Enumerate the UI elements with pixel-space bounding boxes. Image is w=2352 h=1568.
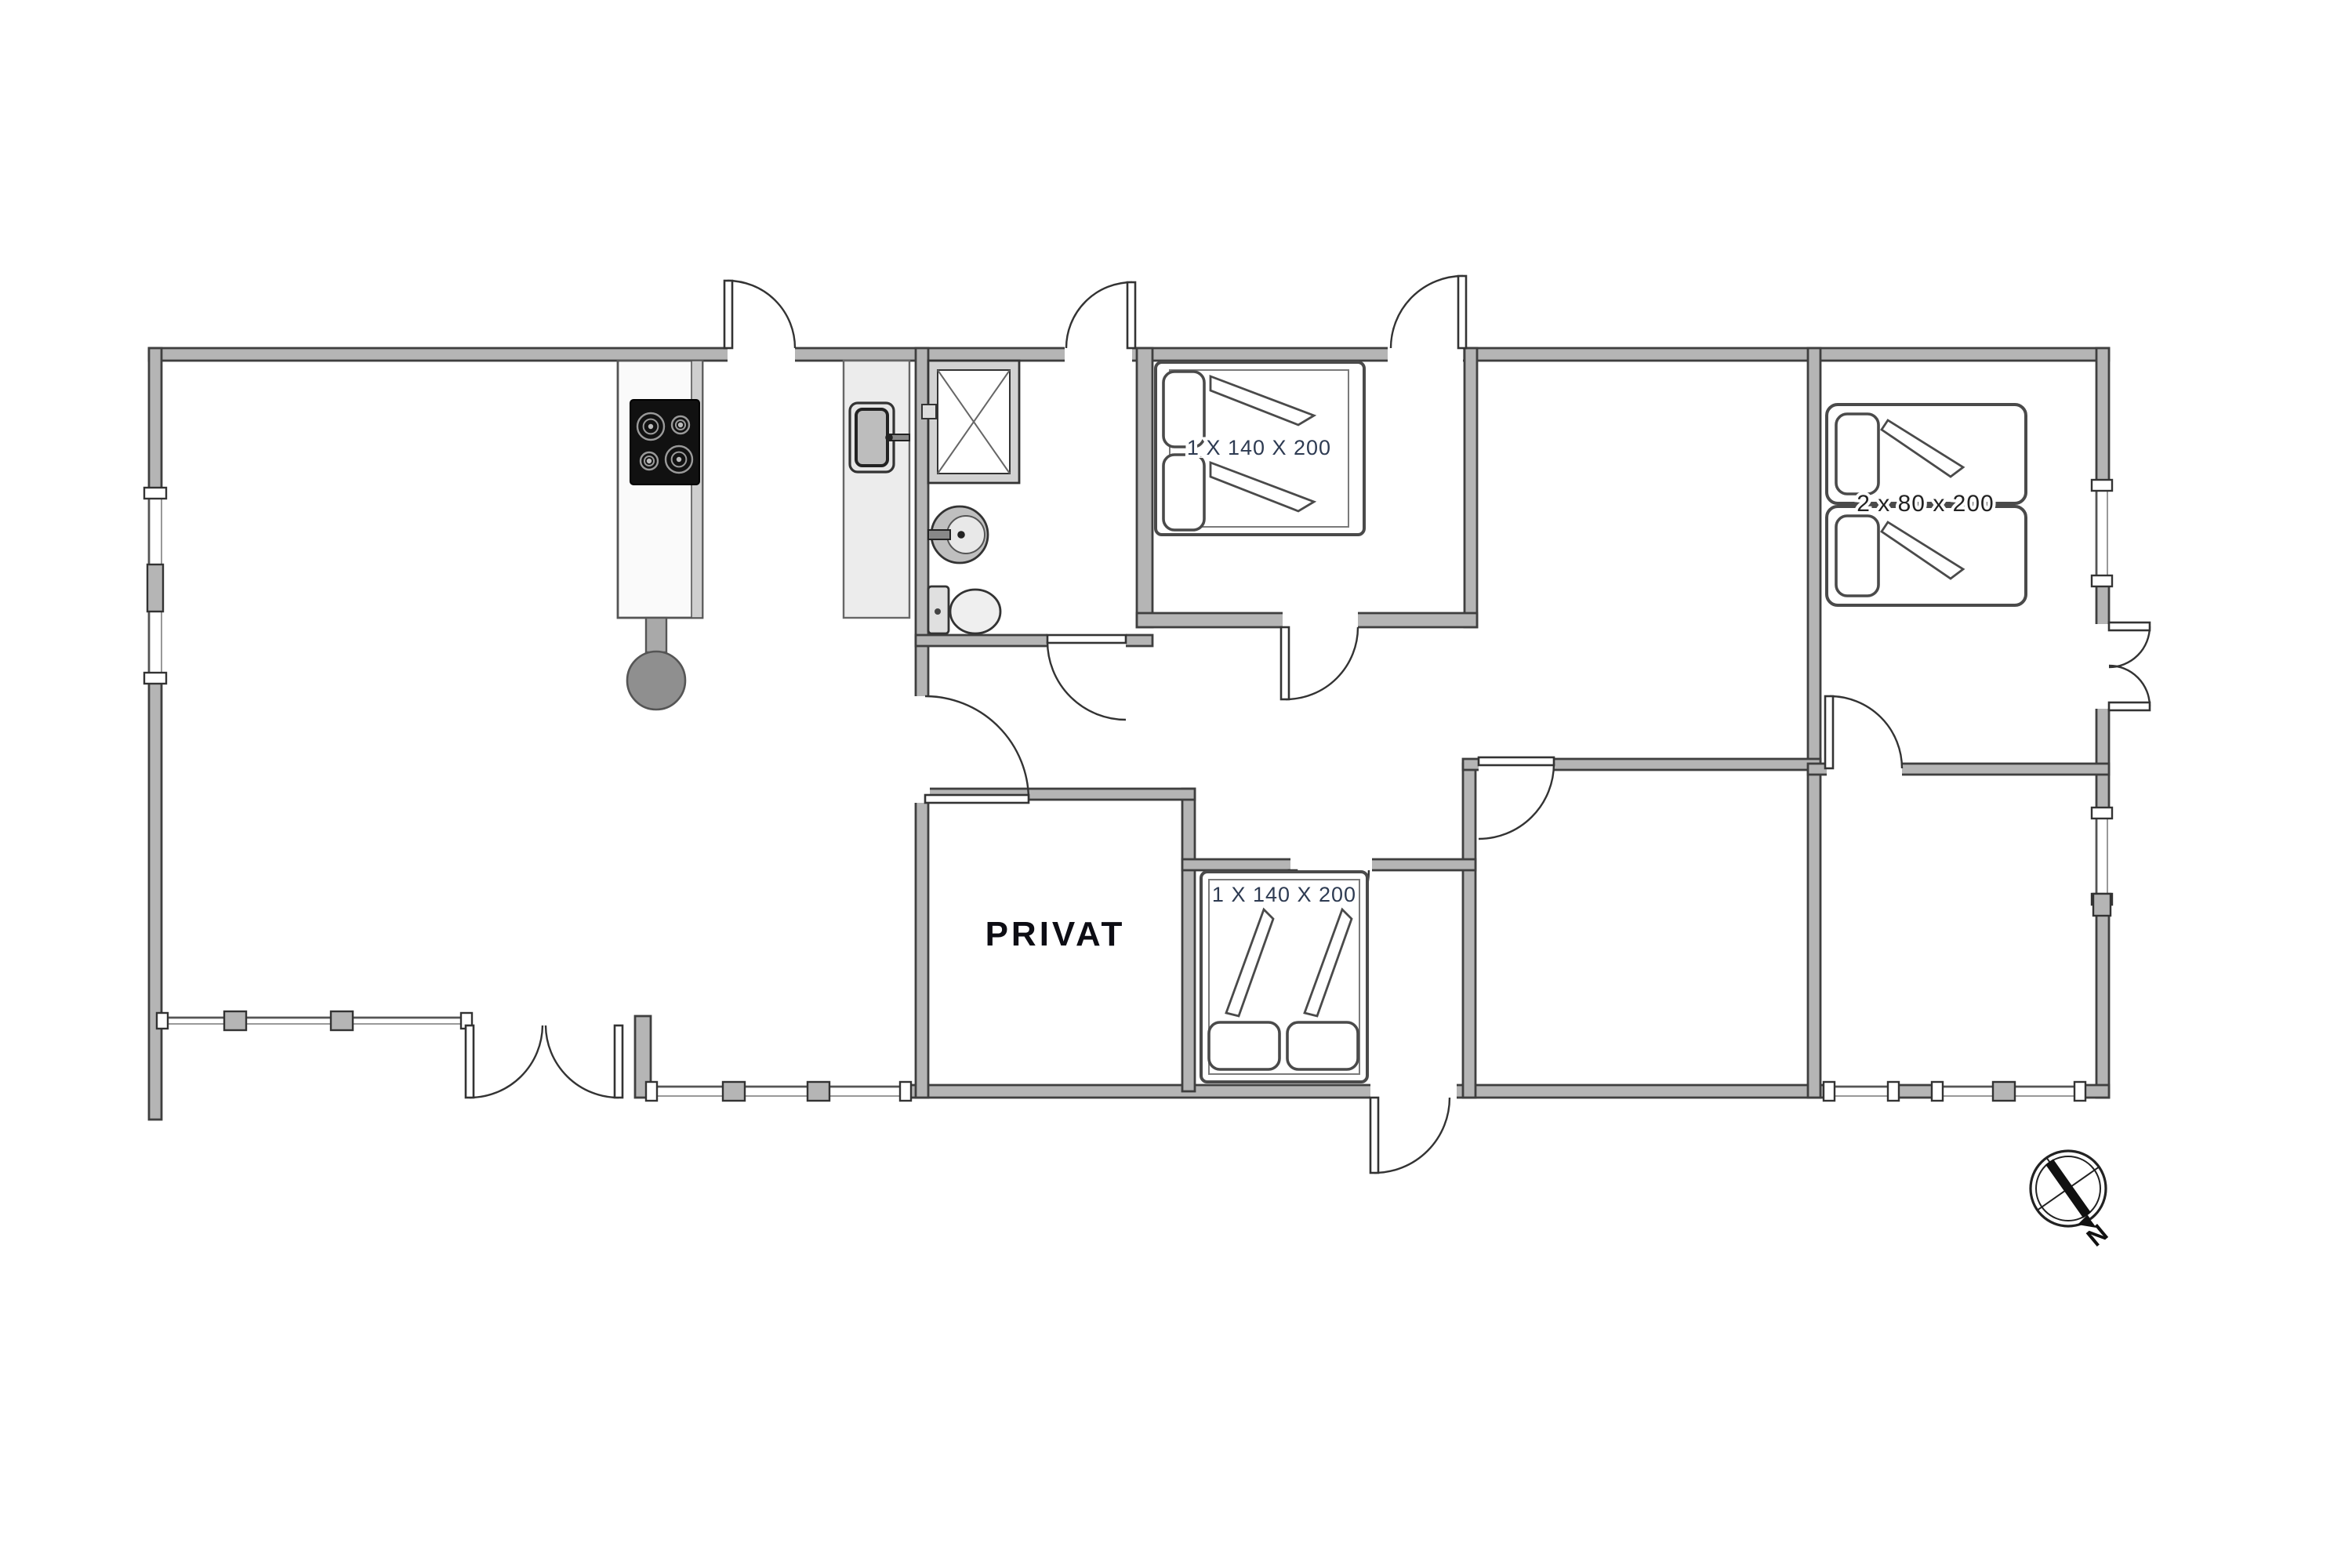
door-swing-arc <box>470 1025 543 1098</box>
window-end-cap <box>1888 1082 1899 1101</box>
bathroom-fixtures <box>922 361 1019 633</box>
door-leaf <box>1479 757 1554 765</box>
door-leaf <box>1458 276 1466 348</box>
window-mullion <box>331 1011 353 1030</box>
door-swing-arc <box>925 696 1029 800</box>
door-porch-french-right <box>546 1025 622 1098</box>
door-bath-exterior <box>1066 282 1135 348</box>
door-entrance-nw <box>724 281 795 348</box>
window-end-cap <box>144 673 166 684</box>
pillow <box>1836 414 1878 494</box>
wood-stove <box>627 652 685 710</box>
door-leaf <box>724 281 732 348</box>
door-south-exterior <box>1370 1098 1450 1173</box>
door-porch-french-left <box>466 1025 543 1098</box>
wall-opening <box>728 347 795 362</box>
door-hall-west <box>925 696 1029 803</box>
door-leaf <box>1047 635 1126 643</box>
door-leaf <box>466 1025 474 1098</box>
door-swing-arc <box>1830 696 1902 768</box>
door-swing-arc <box>1066 282 1132 348</box>
window-end-cap <box>2092 480 2112 491</box>
door-leaf <box>925 795 1029 803</box>
window-end-cap <box>1932 1082 1943 1101</box>
shower-head-icon <box>922 405 936 419</box>
door-swing-arc <box>546 1025 619 1098</box>
sink-basin <box>856 409 887 466</box>
north-needle <box>2049 1162 2087 1215</box>
door-leaf <box>1370 1098 1378 1173</box>
window-porch-band <box>157 1011 472 1030</box>
wall-bottommid-west <box>1463 764 1475 1098</box>
pillow <box>1209 1022 1279 1069</box>
door-leaf <box>615 1025 622 1098</box>
door-leaf <box>1127 282 1135 348</box>
washbasin-bowl <box>947 516 985 554</box>
door-bedroom1 <box>1281 627 1358 699</box>
door-east-french-top <box>2109 622 2150 667</box>
window-mullion <box>723 1082 745 1101</box>
bed-size-label: 1 X 140 X 200 <box>1212 883 1356 906</box>
door-bedroom1-exterior <box>1391 276 1466 348</box>
door-swing-arc <box>1391 276 1463 348</box>
wall-opening <box>914 696 930 803</box>
window-end-cap <box>157 1013 168 1029</box>
wall-exterior-east <box>2096 348 2109 1098</box>
door-swing-arc <box>1479 764 1554 839</box>
bed-size-label: 2 x 80 x 200 <box>1857 491 1994 517</box>
window-mullion <box>1993 1082 2015 1101</box>
wall-opening <box>1388 347 1463 362</box>
cooktop-burner-icon <box>647 459 652 463</box>
cooktop-burner-icon <box>648 424 653 429</box>
door-bedroom2 <box>1825 696 1902 768</box>
window-end-cap <box>2092 808 2112 818</box>
door-leaf <box>2109 702 2150 710</box>
door-leaf <box>1825 696 1833 768</box>
door-leaf <box>1281 627 1289 699</box>
pillow <box>1836 516 1878 596</box>
floor-plan-canvas: 1 X 140 X 2001 X 140 X 2002 x 80 x 200PR… <box>0 0 2352 1568</box>
wall-mid-east <box>1808 348 1820 1098</box>
toilet-bowl <box>950 590 1000 633</box>
window-south-living <box>646 1082 911 1101</box>
window-west-wall <box>144 488 166 684</box>
kitchen-counter <box>618 361 702 710</box>
door-swing-arc <box>1047 641 1126 720</box>
wall-bath-east <box>1137 348 1152 627</box>
wall-privat-east <box>1182 789 1195 1091</box>
window-mullion <box>147 564 163 612</box>
bed-size-label: 1 X 140 X 200 <box>1187 436 1331 459</box>
pillow <box>1163 455 1204 530</box>
wall-opening <box>1370 1083 1457 1099</box>
window-end-cap <box>144 488 166 499</box>
window-mullion <box>224 1011 246 1030</box>
window-mullion <box>808 1082 829 1101</box>
compass-rose: N <box>2016 1136 2121 1252</box>
wall-opening <box>2095 624 2111 709</box>
wall-exterior-south <box>906 1085 2109 1098</box>
door-swing-arc <box>2109 626 2150 667</box>
wood-stove-flue <box>646 618 666 652</box>
utility-counter-top <box>844 361 909 618</box>
door-swing-arc <box>728 281 795 348</box>
door-swing-arc <box>1286 627 1358 699</box>
toilet-flush-icon <box>935 608 941 615</box>
window-end-cap <box>1824 1082 1835 1101</box>
door-leaf <box>2109 622 2150 630</box>
door-swing-arc <box>1374 1098 1450 1173</box>
fixtures-layer <box>618 361 1019 710</box>
window-mullion <box>2093 894 2111 916</box>
window-end-cap <box>2074 1082 2085 1101</box>
door-east-french-bottom <box>2109 666 2150 710</box>
washbasin-faucet-icon <box>928 530 950 539</box>
room-label-privat: PRIVAT <box>985 915 1126 953</box>
beds-layer <box>1156 362 2026 1082</box>
wall-opening <box>1290 858 1372 872</box>
cooktop-burner-icon <box>678 423 683 427</box>
window-end-cap <box>900 1082 911 1101</box>
faucet-icon <box>885 434 893 441</box>
cooktop-burner-icon <box>677 457 681 462</box>
utility-counter <box>844 361 909 618</box>
wall-exterior-west <box>149 348 162 1120</box>
pillow <box>1287 1022 1358 1069</box>
window-end-cap <box>646 1082 657 1101</box>
wall-opening <box>1065 347 1132 362</box>
wall-opening <box>1827 762 1902 776</box>
washbasin-faucet-icon <box>957 531 965 539</box>
cooktop <box>630 400 699 485</box>
door-bathroom <box>1047 635 1126 720</box>
wall-bedroom1-east <box>1465 348 1477 627</box>
walls-layer <box>149 348 2109 1120</box>
door-swing-arc <box>2109 666 2150 706</box>
wall-opening <box>1283 612 1358 629</box>
floor-plan: 1 X 140 X 2001 X 140 X 2002 x 80 x 200PR… <box>0 0 2352 1568</box>
window-end-cap <box>2092 575 2112 586</box>
